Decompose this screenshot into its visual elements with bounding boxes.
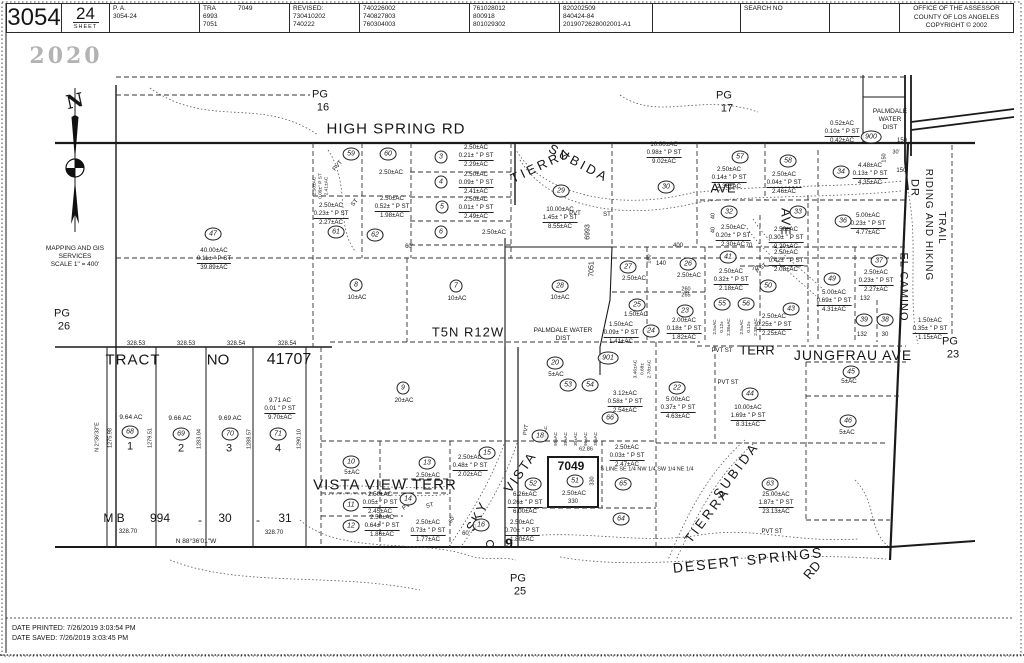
pg-26: PG [54, 309, 70, 320]
acreage-label: 2.50±AC0.20± " P ST2.30±AC [716, 224, 751, 248]
parcel-44-circle: 44 [742, 388, 759, 401]
map-text: N 88°36'01"W [176, 539, 216, 546]
map-text: 160 [647, 254, 653, 263]
acreage-label: 2.50±AC0.05± " P ST2.45±AC [363, 491, 398, 515]
parcel-39-circle: 39 [856, 314, 873, 327]
parcel-33-circle: 33 [790, 206, 807, 219]
revised-label: REVISED: [293, 5, 356, 13]
parcel-29-circle: 29 [553, 185, 570, 198]
map-text: TRAIL [936, 211, 946, 244]
rev-no: 740226002 [363, 5, 466, 13]
parcel-9-circle: 9 [397, 382, 410, 395]
acreage-label: 10±AC [551, 294, 570, 302]
acreage-label: 2.50±AC0.09± " P ST2.41±AC [459, 171, 494, 195]
parcel-71-circle: 71 [270, 428, 287, 441]
parcel-7-circle: 7 [450, 280, 463, 293]
compass-north-letter: N [65, 91, 86, 113]
map-text: 9.64 AC [119, 415, 142, 422]
lot-2: 2 [178, 444, 184, 455]
empty-cell [830, 3, 900, 33]
date-saved: DATE SAVED: 7/26/2019 3:03:45 PM [12, 634, 128, 643]
pg-16: PG [312, 90, 328, 101]
acreage-label: 25.00±AC1.87± " P ST23.13±AC [759, 491, 794, 515]
lot-4: 4 [275, 444, 281, 455]
map-text: 994 [150, 512, 170, 524]
map-text: 150' [896, 168, 907, 174]
watermark-2020: 2020 [29, 45, 102, 67]
parcel-45-circle: 45 [843, 366, 860, 379]
acreage-label: 5±AC [841, 378, 856, 386]
map-text: 2.78±AC [649, 360, 654, 379]
map-text: 0.12± [747, 321, 752, 332]
rev-no: 740827803 [363, 13, 466, 21]
acreage-label: 1.50±AC0.35± " P ST1.15±AC [913, 317, 948, 341]
office-line: COUNTY OF LOS ANGELES [903, 14, 1010, 23]
map-text: - [198, 514, 202, 526]
map-text: NO [207, 353, 230, 368]
map-text: WATER [879, 117, 902, 124]
acreage-label: 2.50±AC [677, 272, 701, 280]
assessor-map-sheet: 3054 24 SHEET P. A. 3054-24 TRA 6993 705… [0, 0, 1024, 663]
map-text: 328.70 [119, 529, 137, 535]
parcel-14-circle: 14 [400, 493, 417, 506]
acreage-label: 9.71 AC0.01 " P ST9.70±AC [264, 397, 295, 421]
acreage-label: 10.00±AC1.69± " P ST8.31±AC [731, 404, 766, 428]
parcel-900-circle: 900 [861, 131, 882, 144]
map-text: 23 [947, 350, 959, 361]
parcel-50-circle: 50 [760, 280, 777, 293]
tra-7051-label: 7051 [589, 261, 596, 277]
map-book-ref: M B [103, 512, 124, 524]
map-text: 0.68± [642, 363, 647, 375]
map-text: 35±AC [594, 432, 599, 446]
map-text: PVT ST [712, 348, 733, 354]
acreage-label: 0.52±AC0.10± " P ST0.42±AC [825, 120, 860, 144]
acreage-label: 2.50±AC0.52± " P ST1.98±AC [375, 195, 410, 219]
map-text: PVT ST [718, 380, 739, 386]
parcel-5-circle: 5 [436, 201, 449, 214]
parcel-12-circle: 12 [343, 520, 360, 533]
parcel-68-circle: 68 [122, 426, 139, 439]
map-text: 95±AC [554, 432, 559, 446]
empty-cell [653, 3, 741, 33]
palmdale-water-dist-center: PALMDALE WATER [534, 328, 593, 335]
revised-2: 740222 [293, 21, 356, 29]
acreage-label: 3.12±AC0.58± " P ST2.54±AC [608, 390, 643, 414]
tra-7051: 7051 [203, 21, 286, 29]
map-text: 2.5±AC [713, 320, 718, 335]
rev-no: 840424-84 [563, 13, 649, 21]
map-text: 1275.98 [108, 428, 114, 448]
rev-no: 760304003 [363, 21, 466, 29]
gis-credit: MAPPING AND GIS [46, 246, 104, 253]
map-text: 0.12± [720, 321, 725, 332]
map-text: 3.46±AC [635, 360, 640, 379]
acreage-label: 2.50±AC0.14± " P ST2.36±AC [712, 166, 747, 190]
parcel-30-circle: 30 [658, 181, 675, 194]
map-text: 30 [882, 332, 889, 338]
map-text: 25 [514, 587, 526, 598]
parcel-37-circle: 37 [871, 255, 888, 268]
map-text: 17 [721, 104, 733, 115]
parcel-32-circle: 32 [721, 206, 738, 219]
township-range: T5N R12W [432, 326, 504, 339]
acreage-label: 5±AC [548, 371, 563, 379]
map-text: 62.86 [579, 447, 593, 453]
map-text: 96±AC [584, 432, 589, 446]
parcel-18-circle: 18 [532, 430, 549, 443]
map-text: 9.69 AC [218, 416, 241, 423]
parcel-49-circle: 49 [824, 273, 841, 286]
parcel-20-circle: 20 [547, 357, 564, 370]
map-text: DIST [556, 336, 571, 343]
map-text: 2.38±AC [727, 318, 732, 335]
pg-25: PG [510, 574, 526, 585]
acreage-label: 2.50±AC [622, 275, 646, 283]
acreage-label: 2.50±AC [562, 490, 586, 498]
parcel-3-circle: 3 [435, 151, 448, 164]
map-text: 328.70 [265, 530, 283, 536]
map-text: 150 [897, 138, 907, 144]
map-text: PVT ST [762, 529, 783, 535]
revised-1: 730410202 [293, 13, 356, 21]
map-scale: SCALE 1" = 400' [51, 262, 100, 269]
search-no-cell: SEARCH NO [741, 3, 830, 33]
tra-6993: 6993 [203, 13, 286, 21]
acreage-label: 5±AC [839, 429, 854, 437]
parcel-60-circle: 60 [380, 148, 397, 161]
acreage-label: 2.50±AC0.04± " P ST2.46±AC [767, 171, 802, 195]
parcel-62-circle: 62 [367, 229, 384, 242]
map-text: 132 [857, 332, 867, 338]
parcel-53-circle: 53 [560, 379, 577, 392]
map-number: 3054 [6, 3, 62, 33]
parcel-59-circle: 59 [343, 148, 360, 161]
map-text: 41707 [267, 352, 312, 368]
acreage-label: 2.00±AC0.18± " P ST1.82±AC [667, 317, 702, 341]
map-text: 140 [656, 261, 666, 267]
acreage-label: 10.00±AC1.45± " P ST8.55±AC [543, 206, 578, 230]
acreage-label: 2.50±AC [379, 169, 403, 177]
palmdale-water-dist-ne: PALMDALE [873, 109, 907, 116]
acreage-label: 2.50±AC [416, 472, 440, 480]
office-line: OFFICE OF THE ASSESSOR [903, 5, 1010, 14]
parcel-54-circle: 54 [582, 379, 599, 392]
parcel-25-circle: 25 [629, 299, 646, 312]
office-line: COPYRIGHT © 2002 [903, 22, 1010, 31]
acreage-label: 2.50±AC0.01± " P ST2.49±AC [459, 196, 494, 220]
acreage-label: 2.50±AC0.32± " P ST2.18±AC [714, 268, 749, 292]
map-text: 30 [218, 512, 231, 524]
map-text: 30' [892, 150, 899, 156]
parcel-57-circle: 57 [732, 151, 749, 164]
revised-cell: REVISED: 730410202 740222 [290, 3, 360, 33]
map-text: 400 [673, 243, 683, 249]
acreage-label: 5.00±AC0.37± " P ST4.63±AC [661, 396, 696, 420]
map-text: 328.54 [278, 341, 296, 347]
revision-col-3: 820202509 840424-84 2019072628002001-A1 [560, 3, 653, 33]
parcel-26-circle: 26 [680, 258, 697, 271]
map-text: 330 [590, 476, 596, 485]
acreage-label: 10±AC [348, 294, 367, 302]
rev-no: 2019072628002001-A1 [563, 21, 649, 29]
map-text: 16 [317, 103, 329, 114]
rev-no: 801029302 [473, 21, 556, 29]
map-text: SERVICES [59, 254, 92, 261]
map-text: DR [909, 179, 920, 197]
road-el-camino-dr: EL CAMINO [898, 252, 909, 321]
acreage-label: 2.50±AC0.30± " P ST2.20±AC [769, 226, 804, 250]
search-no-label: SEARCH NO [744, 5, 826, 13]
map-text: 328.54 [227, 341, 245, 347]
map-text: 132 [860, 296, 870, 302]
acreage-label: 2.50±AC0.23± " P ST2.27±AC [314, 202, 349, 226]
compass-needle-icon [66, 115, 84, 224]
parcel-52-circle: 52 [525, 478, 542, 491]
parcel-27-circle: 27 [620, 261, 637, 274]
acreage-label: 2.50±AC0.23± " P ST2.27±AC [859, 269, 894, 293]
tra-7049: 7049 [238, 5, 252, 13]
rev-no: 761028012 [473, 5, 556, 13]
parcel-36-circle: 36 [835, 215, 852, 228]
map-text: 60' [405, 244, 413, 250]
map-text: 328.53 [127, 341, 145, 347]
parcel-47-circle: 47 [205, 228, 222, 241]
revision-col-1: 740226002 740827803 760304003 [360, 3, 470, 33]
parcel-43-circle: 43 [783, 303, 800, 316]
map-text: 60' [462, 531, 470, 537]
parcel-41-circle: 41 [720, 251, 737, 264]
tract-label: TRACT [106, 353, 161, 368]
parcel-63-circle: 63 [762, 478, 779, 491]
map-text: DIST [883, 125, 898, 132]
acreage-label: 2.50±AC0.42± " P ST2.08±AC [769, 249, 804, 273]
acreage-label: 2.50±AC0.21± " P ST2.29±AC [459, 144, 494, 168]
rev-no: 820202509 [563, 5, 649, 13]
acreage-label: 2.50±AC0.73± " P ST1.77±AC [411, 519, 446, 543]
sheet-word: SHEET [73, 22, 99, 31]
parcel-10-circle: 10 [343, 456, 360, 469]
map-text: 1288.57 [247, 429, 253, 449]
pg-17: PG [716, 91, 732, 102]
pa-cell: P. A. 3054-24 [110, 3, 200, 33]
parcel-65-circle: 65 [615, 478, 632, 491]
acreage-label: 5±AC [344, 469, 359, 477]
pa-label: P. A. [113, 5, 196, 13]
sheet-number-value: 24 [62, 5, 109, 22]
parcel-28-circle: 28 [552, 280, 569, 293]
parcel-58-circle: 58 [780, 155, 797, 168]
map-text: 40 [711, 213, 717, 219]
acreage-label: 1.50±AC0.09± " P ST1.41±AC [604, 321, 639, 345]
tra-7049-label: 7049 [558, 460, 585, 472]
acreage-label: 10.00±AC0.98± " P ST9.02±AC [647, 141, 682, 165]
acreage-label: 6.26±AC0.26± " P ST6.00±AC [508, 491, 543, 515]
acreage-label: 4.48±AC0.13± " P ST4.35±AC [853, 162, 888, 186]
road-high-spring-rd: HIGH SPRING RD [326, 122, 465, 137]
road-jungfrau-ave: JUNGFRAU AVE [794, 348, 912, 362]
acreage-label: 2.50±AC0.03± " P ST2.47±AC [610, 444, 645, 468]
map-text: 9.66 AC [168, 416, 191, 423]
map-text: 2.41±AC [326, 177, 331, 196]
parcel-24-circle: 24 [643, 325, 660, 338]
acreage-label: 10±AC [448, 295, 467, 303]
riding-and-hiking-trail: RIDING AND HIKING [923, 169, 933, 282]
header-strip: 3054 24 SHEET P. A. 3054-24 TRA 6993 705… [6, 3, 1014, 33]
acreage-label: 40.00±AC0.11± " P ST39.89±AC [197, 247, 231, 271]
date-printed: DATE PRINTED: 7/26/2019 3:03:54 PM [12, 624, 136, 633]
map-text: 1283.04 [197, 429, 203, 449]
map-text: 1279.51 [148, 428, 154, 448]
parcel-22-circle: 22 [669, 382, 686, 395]
map-text: 30±AC [574, 432, 579, 446]
parcel-23-circle: 23 [677, 305, 694, 318]
map-text: 26 [58, 322, 70, 333]
map-text: 1290.10 [297, 429, 303, 449]
parcel-4-circle: 4 [435, 176, 448, 189]
parcel-34-circle: 34 [833, 166, 850, 179]
pa-value: 3054-24 [113, 13, 196, 21]
parcel-61-circle: 61 [328, 226, 345, 239]
parcel-901-circle: 901 [598, 352, 619, 365]
sheet-number: 24 SHEET [62, 3, 110, 33]
parcel-64-circle: 64 [613, 513, 630, 526]
office-cell: OFFICE OF THE ASSESSOR COUNTY OF LOS ANG… [900, 3, 1014, 33]
map-text: 330 [568, 499, 578, 505]
acreage-label: 2.50±AC0.25± " P ST2.25±AC [757, 313, 792, 337]
parcel-46-circle: 46 [840, 415, 857, 428]
acreage-label: 5.00±AC0.69± " P ST4.31±AC [817, 289, 852, 313]
road-terr: TERR [739, 344, 774, 357]
parcel-13-circle: 13 [419, 457, 436, 470]
revision-col-2: 761028012 800918 801029302 [470, 3, 560, 33]
map-text: 328.53 [177, 341, 195, 347]
parcel-55-circle: 55 [714, 298, 731, 311]
lot-1: 1 [127, 442, 133, 453]
lot-3: 3 [226, 444, 232, 455]
map-text: 70 [752, 266, 759, 272]
map-text: N 2°36'33"E [95, 422, 101, 452]
map-text: 35±AC [564, 432, 569, 446]
map-text: 31 [278, 512, 291, 524]
parcel-16-circle: 16 [473, 519, 490, 532]
map-text: ST [603, 212, 611, 218]
tra-6993-label: 6993 [585, 224, 592, 240]
tra-cell: TRA 6993 7051 7049 [200, 3, 290, 33]
parcel-70-circle: 70 [222, 428, 239, 441]
acreage-label: 2.50±AC0.70± " P ST1.80±AC [505, 519, 540, 543]
parcel-8-circle: 8 [350, 279, 363, 292]
parcel-15-circle: 15 [479, 447, 496, 460]
map-linework [0, 0, 1024, 663]
rev-no: 800918 [473, 13, 556, 21]
parcel-66-circle: 66 [602, 412, 619, 425]
parcel-69-circle: 69 [173, 428, 190, 441]
acreage-label: 20±AC [395, 397, 414, 405]
map-text: - [256, 514, 260, 526]
acreage-label: 2.50±AC0.64± " P ST1.86±AC [365, 514, 400, 538]
parcel-38-circle: 38 [877, 314, 894, 327]
acreage-label: 2.50±AC [482, 229, 506, 237]
parcel-56-circle: 56 [738, 298, 755, 311]
acreage-label: 5.00±AC0.23± " P ST4.77±AC [851, 212, 886, 236]
parcel-6-circle: 6 [435, 226, 448, 239]
parcel-51-circle: 51 [567, 475, 584, 488]
map-text: 2.5±AC [740, 320, 745, 335]
acreage-label: 1.50±AC [624, 311, 648, 319]
map-text: 265 [681, 293, 690, 299]
